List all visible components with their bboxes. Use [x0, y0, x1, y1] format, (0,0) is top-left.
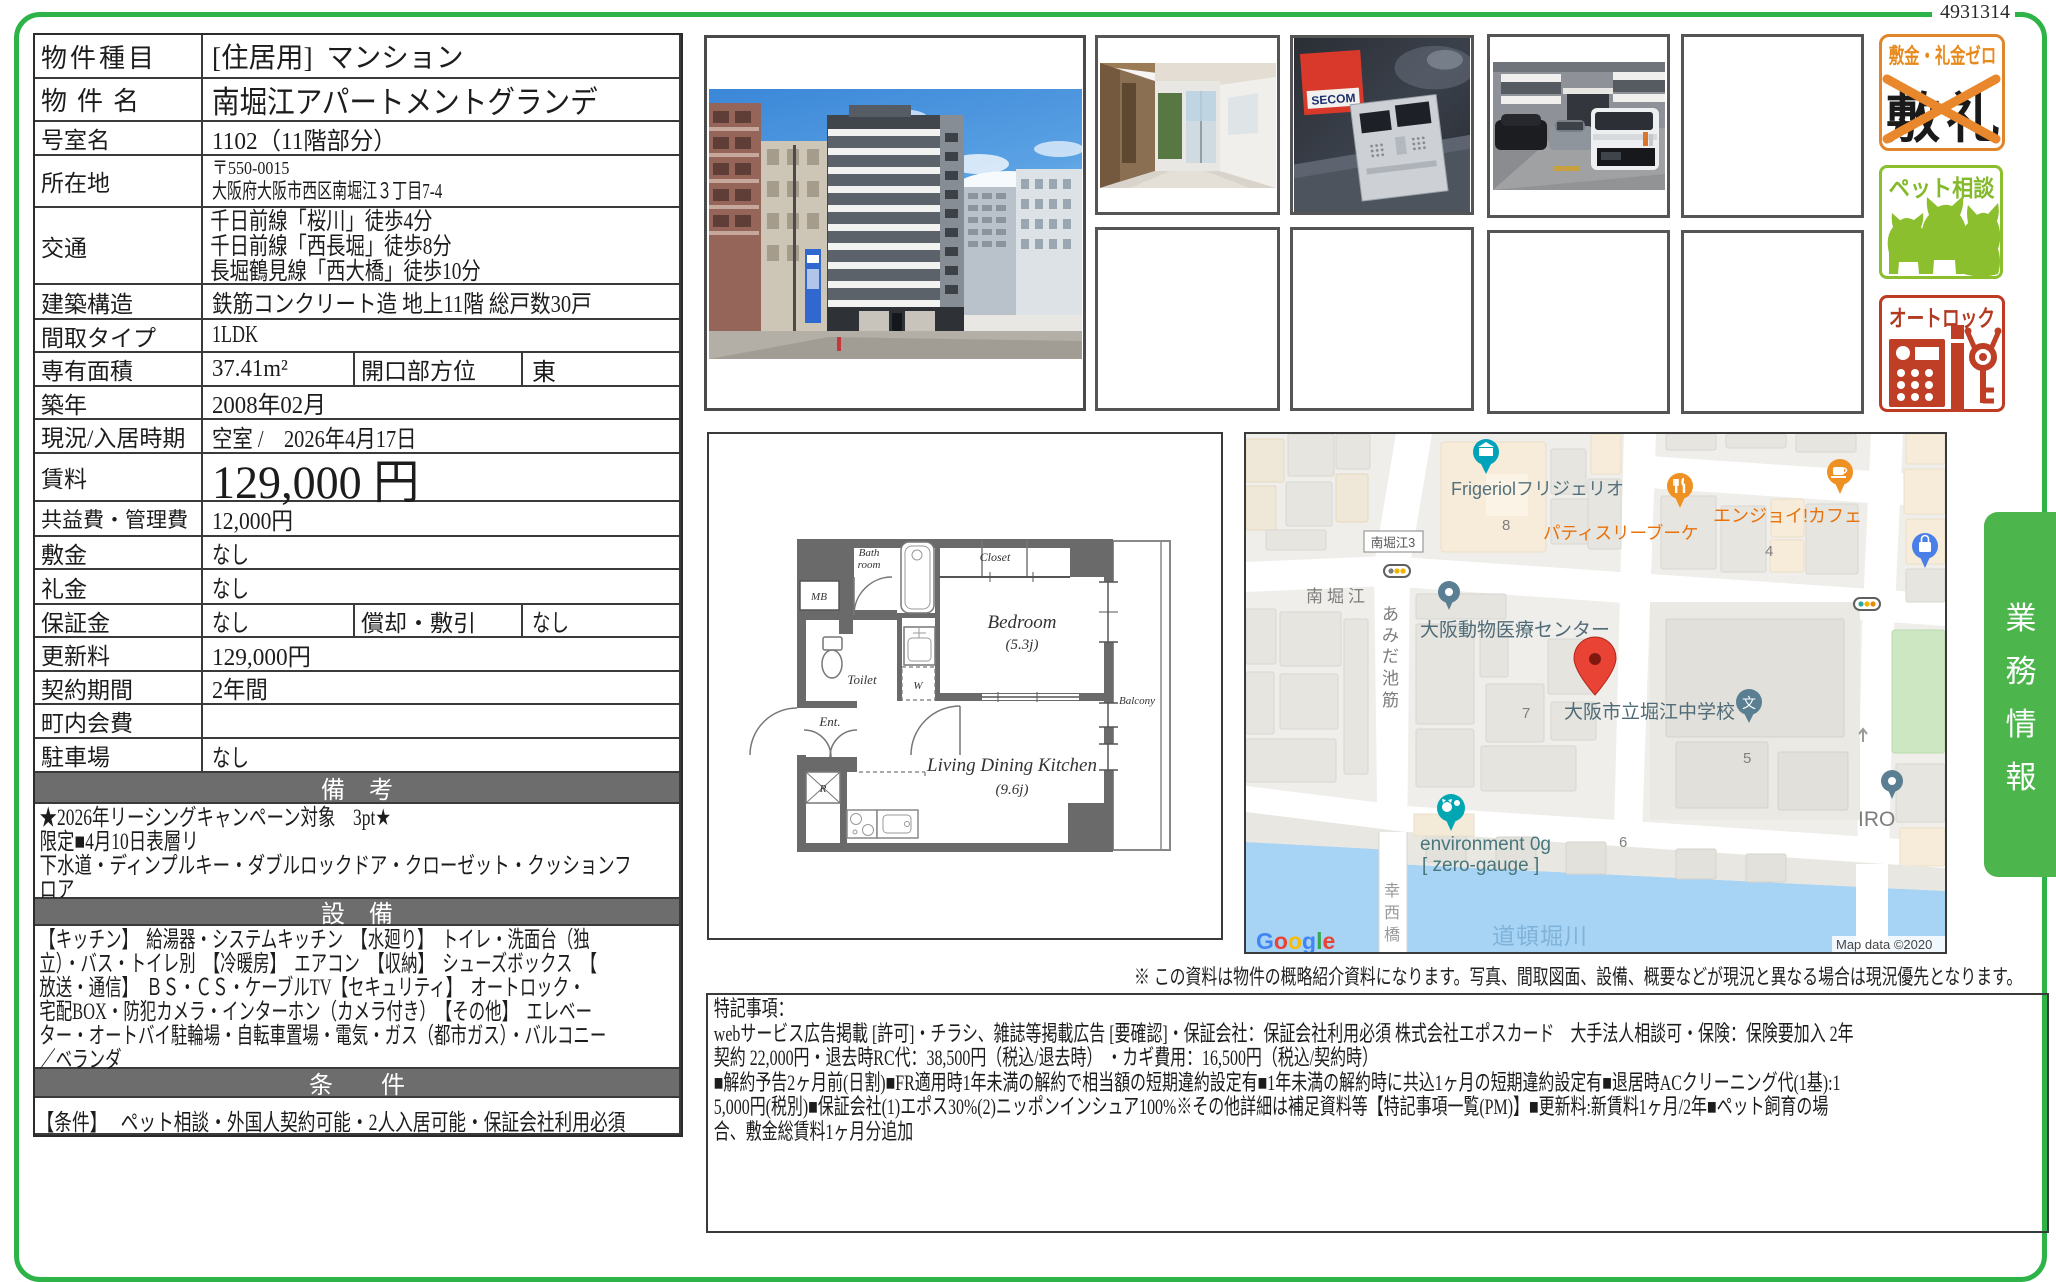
svg-text:南堀江3: 南堀江3 [1371, 535, 1416, 550]
svg-text:筋: 筋 [1382, 691, 1399, 710]
svg-text:R: R [819, 783, 827, 795]
svg-text:4: 4 [1765, 543, 1773, 560]
svg-text:Balcony: Balcony [1119, 695, 1155, 707]
svg-text:Living Dining Kitchen: Living Dining Kitchen [926, 755, 1097, 776]
svg-text:[ zero-gauge ]: [ zero-gauge ] [1422, 855, 1539, 876]
svg-text:room: room [858, 559, 881, 571]
svg-text:Google: Google [1256, 928, 1335, 952]
svg-text:み: み [1382, 626, 1399, 645]
svg-text:Frigeriolフリジェリオ: Frigeriolフリジェリオ [1451, 479, 1624, 499]
svg-text:environment 0g: environment 0g [1420, 834, 1551, 855]
svg-text:6: 6 [1619, 834, 1627, 851]
svg-text:池: 池 [1382, 669, 1399, 688]
svg-text:Map data ©2020: Map data ©2020 [1836, 937, 1932, 952]
svg-text:5: 5 [1743, 750, 1751, 767]
svg-text:Bath: Bath [859, 547, 880, 559]
svg-text:南堀江: 南堀江 [1306, 587, 1369, 606]
svg-text:幸: 幸 [1384, 882, 1400, 900]
svg-text:あ: あ [1382, 605, 1399, 624]
svg-text:パティスリーブーケ: パティスリーブーケ [1543, 523, 1698, 543]
svg-text:大阪市立堀江中学校: 大阪市立堀江中学校 [1564, 701, 1735, 723]
svg-text:8: 8 [1502, 517, 1510, 534]
svg-text:(9.6j): (9.6j) [996, 782, 1029, 798]
svg-text:MB: MB [810, 591, 827, 603]
svg-text:Toilet: Toilet [847, 672, 877, 687]
svg-text:Bedroom: Bedroom [988, 612, 1057, 633]
svg-text:Closet: Closet [980, 550, 1011, 564]
svg-text:Ent.: Ent. [818, 714, 840, 729]
svg-text:7: 7 [1522, 705, 1530, 722]
svg-text:だ: だ [1382, 647, 1399, 666]
svg-text:西: 西 [1384, 905, 1400, 922]
svg-text:(5.3j): (5.3j) [1006, 637, 1039, 653]
svg-text:エンジョイ!カフェ: エンジョイ!カフェ [1713, 506, 1862, 526]
svg-text:道頓堀川: 道頓堀川 [1492, 923, 1588, 949]
svg-text:橋: 橋 [1384, 926, 1400, 944]
svg-text:IRO: IRO [1858, 808, 1895, 831]
svg-text:文: 文 [1742, 695, 1756, 711]
svg-text:大阪動物医療センター: 大阪動物医療センター [1420, 619, 1610, 641]
svg-text:W: W [913, 680, 923, 692]
